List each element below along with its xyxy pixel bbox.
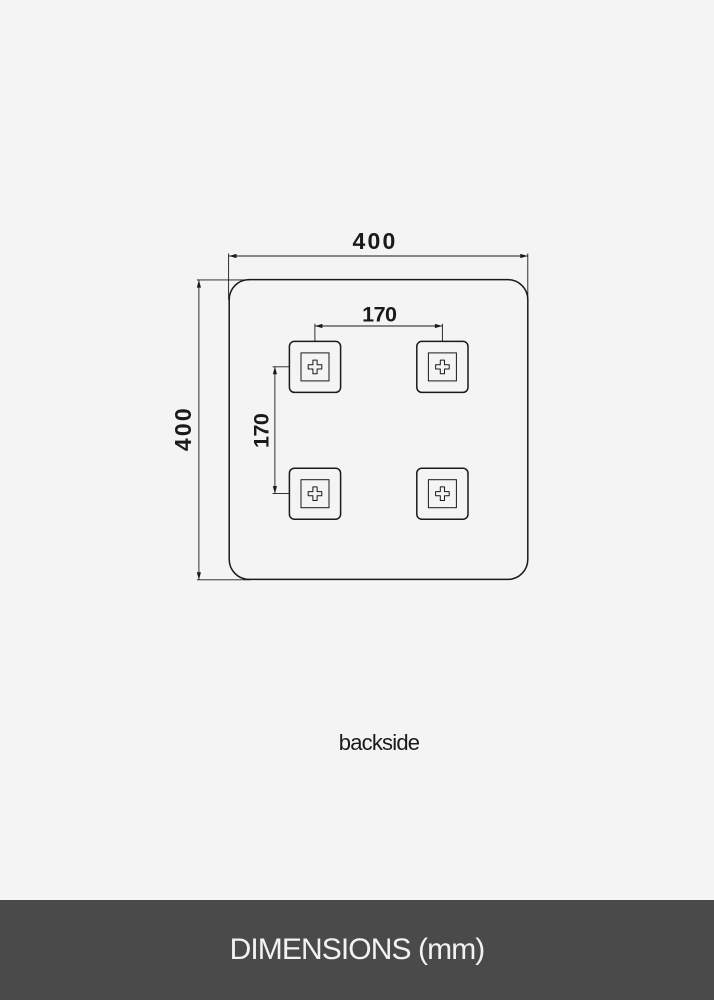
svg-text:170: 170	[362, 302, 397, 326]
svg-text:170: 170	[250, 413, 274, 448]
svg-text:400: 400	[353, 228, 398, 254]
svg-text:400: 400	[170, 406, 196, 451]
